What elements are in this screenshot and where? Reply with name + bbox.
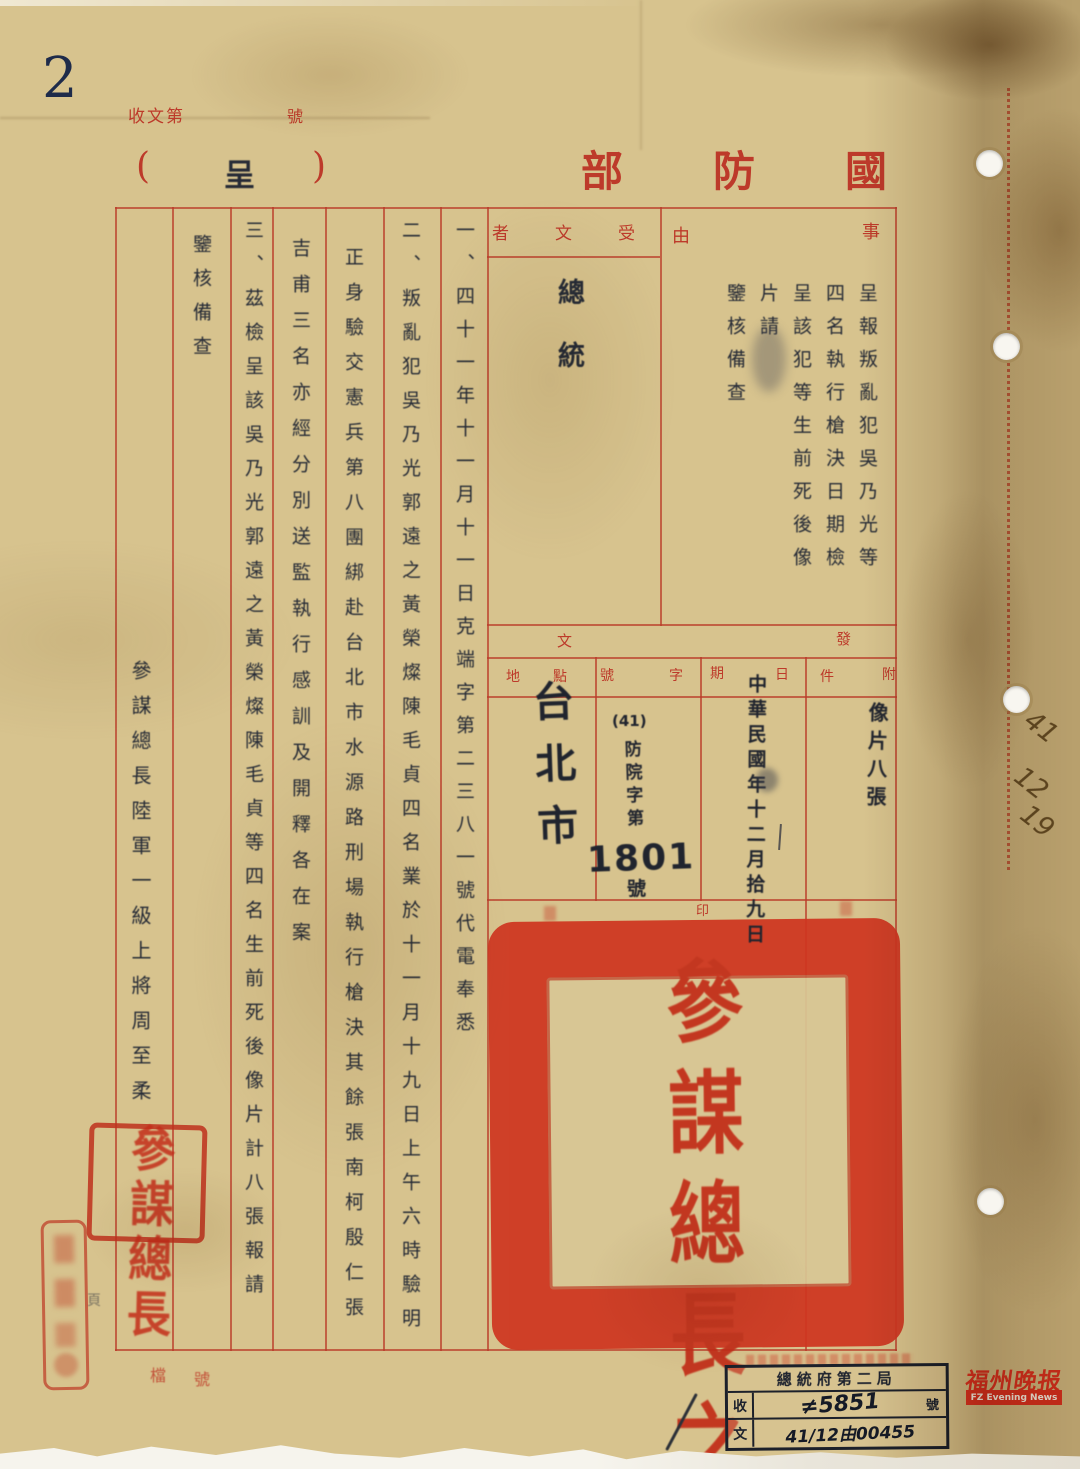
column-rule-5 xyxy=(383,207,385,1351)
stamp-blur-mark-4 xyxy=(54,1353,78,1377)
vertical-crease xyxy=(640,0,642,150)
recipient-header-line xyxy=(487,256,660,258)
tall-red-stamp xyxy=(41,1220,90,1391)
receipt-number-label: 收文第 xyxy=(128,102,185,127)
column-rule-6 xyxy=(440,207,442,1351)
archive-label-char-dang: 檔 xyxy=(150,1362,166,1386)
margin-date-year: 41 xyxy=(1018,705,1064,751)
received-stamp-title: 總統府第二局 xyxy=(777,1367,897,1389)
location-stamp: 台北市 xyxy=(519,679,585,867)
stitch-dotted-line xyxy=(1007,88,1010,870)
dispatch-header-char-wen: 文 xyxy=(557,630,572,651)
receipt-number-suffix: 號 xyxy=(287,103,303,127)
date-label-char-qi: 期 xyxy=(710,663,724,683)
ministry-title: 部防國 xyxy=(581,138,977,199)
form-border-bottom xyxy=(115,1349,897,1351)
handwritten-page-number: 2 xyxy=(42,46,78,111)
square-red-seal: 參謀總長 xyxy=(86,1122,207,1243)
doc-type-char: 呈 xyxy=(224,150,255,195)
page-char: 頁 xyxy=(87,1290,101,1310)
dispatch-header-line xyxy=(487,657,897,659)
body-column-2: 二、叛亂犯吳乃光郭遠之黃榮燦陳毛貞四名業於十一月十九日上午六時驗明 xyxy=(397,220,424,1342)
scan-top-edge xyxy=(0,0,1080,6)
handwritten-tick xyxy=(778,824,782,850)
stamp-blur-mark-2 xyxy=(55,1279,75,1307)
subject-label-char-shi: 事 xyxy=(862,218,880,244)
received-label-shou: 收 xyxy=(728,1393,754,1418)
chief-of-staff-seal: 參謀總長之印 xyxy=(488,918,904,1350)
number-stamp-suffix: 號 xyxy=(627,874,646,901)
number-stamp-series: 防院字第 xyxy=(618,740,646,833)
punch-hole-3 xyxy=(1003,686,1030,713)
punch-hole-2 xyxy=(993,333,1020,360)
recipient-left-rule xyxy=(487,207,489,1351)
received-stamp-box: 總統府第二局 收 ≠5851 號 文 41/12由00455 xyxy=(725,1363,950,1451)
dispatch-rule-b xyxy=(700,657,702,901)
stamp-blur-mark-3 xyxy=(55,1323,75,1347)
form-border-top xyxy=(115,207,897,209)
attachment-label-char-fu: 附 xyxy=(882,664,896,684)
date-stamp: 中華民國年十二月拾九日 xyxy=(741,674,770,949)
scanned-document: 2 收文第 號 ( 呈 ) 部防國 事 由 呈報叛亂犯吳乃光等 四名執行槍決日期… xyxy=(0,0,1080,1469)
body-column-6: 鑒核備查 xyxy=(188,234,215,370)
seal-inner-window: 參謀總長之印 xyxy=(546,974,851,1289)
body-column-5: 三、茲檢呈該吳乃光郭遠之黃榮燦陳毛貞等四名生前死後像片計八張報請 xyxy=(240,220,267,1308)
subject-column-1: 呈報叛亂犯吳乃光等 xyxy=(854,283,881,580)
attachment-label-char-jian: 件 xyxy=(820,666,834,686)
stamp-blur-mark-1 xyxy=(54,1235,74,1263)
attachment-value: 像片八張 xyxy=(861,702,893,815)
dispatch-top-line xyxy=(487,624,897,626)
punch-hole-1 xyxy=(976,150,1003,177)
number-label-char-zi: 字 xyxy=(669,665,683,685)
date-label-char-ri: 日 xyxy=(775,664,789,684)
received-number-suffix: 號 xyxy=(926,1394,946,1413)
body-column-3: 正身驗交憲兵第八團綁赴台北市水源路刑場執行槍決其餘張南柯殷仁張 xyxy=(340,247,367,1332)
number-stamp-prefix: (41) xyxy=(612,712,647,730)
subject-column-2: 四名執行槍決日期檢 xyxy=(821,283,848,580)
doc-type-paren-open: ( xyxy=(136,146,150,187)
received-stamp-number-row: 收 ≠5851 號 xyxy=(728,1391,946,1420)
newspaper-logo-en: FZ Evening News xyxy=(971,1393,1058,1403)
signature-column: 參謀總長陸軍一級上將周至柔 xyxy=(126,660,155,1115)
subject-column-3: 呈該犯等生前死後像 xyxy=(788,283,815,580)
subject-column-5: 鑒核備查 xyxy=(722,283,749,415)
faded-red-label-right xyxy=(840,901,852,916)
seal-row-line xyxy=(487,899,897,901)
seal-row-label: 印 xyxy=(696,900,709,919)
square-seal-text: 參謀總長 xyxy=(120,1123,174,1243)
dispatch-header-char-fa: 發 xyxy=(836,628,851,649)
body-column-1: 一、四十一年十一月十一日克端字第二三八一號代電奉悉 xyxy=(451,220,478,1045)
body-column-4: 吉甫三名亦經分別送監執行感訓及開釋各在案 xyxy=(287,238,314,958)
recipient-value: 總統 xyxy=(549,278,588,404)
number-label-char-hao: 號 xyxy=(600,665,614,685)
newspaper-logo-en-box: FZ Evening News xyxy=(966,1390,1062,1405)
doc-type-paren-close: ) xyxy=(312,146,326,187)
archive-label-char-hao: 號 xyxy=(194,1366,210,1390)
faded-red-label-left xyxy=(544,906,556,921)
column-rule-2 xyxy=(230,207,232,1351)
horizontal-crease xyxy=(0,117,430,119)
column-rule-3 xyxy=(272,207,274,1351)
subject-column-4: 片請 xyxy=(755,283,782,349)
column-rule-4 xyxy=(325,207,327,1351)
seal-script-text: 參謀總長之印 xyxy=(640,954,758,1309)
recipient-label: 者文受 xyxy=(492,219,681,244)
punch-hole-4 xyxy=(977,1188,1004,1215)
received-label-wen: 文 xyxy=(728,1420,754,1447)
margin-date-day: 19 xyxy=(1014,799,1060,845)
subject-left-rule xyxy=(660,207,662,626)
